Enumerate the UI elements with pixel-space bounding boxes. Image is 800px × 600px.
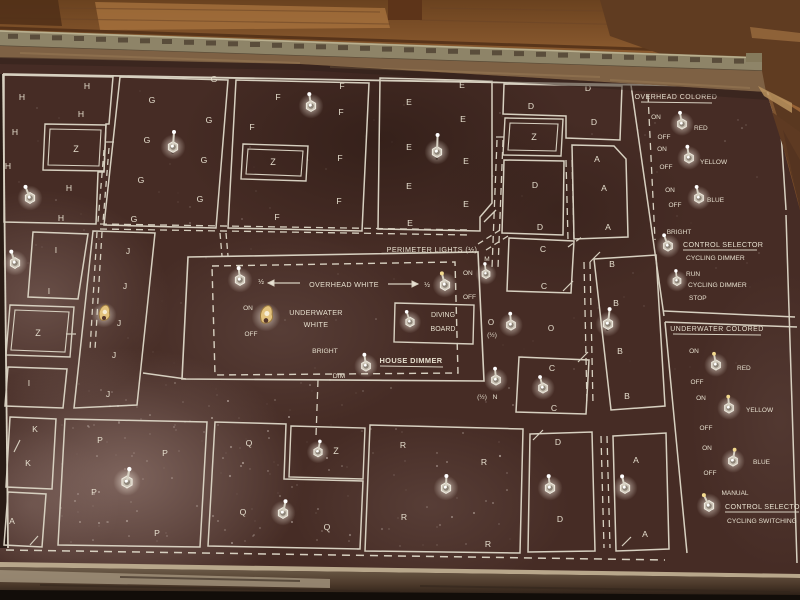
svg-text:B: B <box>624 391 630 401</box>
svg-text:OVERHEAD WHITE: OVERHEAD WHITE <box>309 280 379 289</box>
svg-text:BLUE: BLUE <box>753 459 771 466</box>
svg-text:I: I <box>28 378 30 388</box>
svg-text:CYCLING DIMMER: CYCLING DIMMER <box>688 282 747 289</box>
svg-text:P: P <box>91 487 97 497</box>
svg-text:Z: Z <box>270 157 276 167</box>
svg-text:Q: Q <box>240 507 247 517</box>
svg-text:E: E <box>406 181 412 191</box>
svg-text:J: J <box>112 350 116 360</box>
svg-text:A: A <box>601 183 607 193</box>
svg-text:DIM: DIM <box>333 373 346 380</box>
svg-text:DIVING: DIVING <box>431 312 455 319</box>
svg-text:E: E <box>407 218 413 228</box>
svg-text:E: E <box>406 97 412 107</box>
svg-text:G: G <box>211 74 218 84</box>
svg-text:J: J <box>126 246 130 256</box>
svg-text:G: G <box>201 155 208 165</box>
svg-text:B: B <box>609 259 615 269</box>
svg-text:ON: ON <box>689 348 699 355</box>
svg-text:E: E <box>459 80 465 90</box>
svg-text:R: R <box>485 539 491 549</box>
svg-text:OFF: OFF <box>691 379 704 386</box>
svg-text:YELLOW: YELLOW <box>746 407 774 414</box>
svg-text:D: D <box>537 222 543 232</box>
svg-text:M: M <box>484 256 489 263</box>
svg-text:UNDERWATER: UNDERWATER <box>289 308 343 317</box>
svg-text:OFF: OFF <box>658 134 671 141</box>
svg-text:H: H <box>5 161 11 171</box>
svg-text:P: P <box>154 528 160 538</box>
svg-text:(½): (½) <box>477 393 487 401</box>
svg-text:STOP: STOP <box>689 295 707 302</box>
svg-text:H: H <box>58 213 64 223</box>
svg-text:YELLOW: YELLOW <box>700 159 728 166</box>
svg-text:B: B <box>617 346 623 356</box>
svg-text:G: G <box>144 135 151 145</box>
svg-text:Z: Z <box>35 328 41 338</box>
svg-text:R: R <box>400 440 406 450</box>
svg-text:OFF: OFF <box>704 470 717 477</box>
svg-text:Z: Z <box>73 144 79 154</box>
svg-text:B: B <box>613 298 619 308</box>
svg-text:WHITE: WHITE <box>304 320 329 329</box>
svg-text:Z: Z <box>333 446 339 456</box>
svg-text:RUN: RUN <box>686 271 700 278</box>
svg-text:MANUAL: MANUAL <box>721 490 748 497</box>
svg-text:A: A <box>594 154 600 164</box>
svg-text:ON: ON <box>702 445 712 452</box>
svg-text:I: I <box>55 245 57 255</box>
svg-text:RED: RED <box>737 365 751 372</box>
svg-text:OFF: OFF <box>660 164 673 171</box>
svg-text:I: I <box>48 286 50 296</box>
svg-text:RED: RED <box>694 125 708 132</box>
svg-text:(½): (½) <box>487 331 497 339</box>
svg-text:N: N <box>493 394 498 401</box>
svg-text:Q: Q <box>324 522 331 532</box>
svg-text:G: G <box>197 194 204 204</box>
svg-text:J: J <box>123 281 127 291</box>
svg-text:F: F <box>336 196 341 206</box>
svg-text:E: E <box>460 114 466 124</box>
svg-text:Q: Q <box>246 438 253 448</box>
svg-text:OFF: OFF <box>669 202 682 209</box>
svg-text:J: J <box>117 318 121 328</box>
svg-text:D: D <box>532 180 538 190</box>
svg-text:F: F <box>274 212 279 222</box>
svg-text:D: D <box>528 101 534 111</box>
svg-text:E: E <box>463 156 469 166</box>
svg-text:C: C <box>540 244 546 254</box>
svg-text:A: A <box>605 222 611 232</box>
svg-text:F: F <box>339 81 344 91</box>
svg-text:A: A <box>642 529 648 539</box>
svg-text:H: H <box>84 81 90 91</box>
svg-text:G: G <box>149 95 156 105</box>
svg-text:A: A <box>9 516 15 526</box>
svg-text:F: F <box>275 92 280 102</box>
svg-text:P: P <box>97 435 103 445</box>
svg-text:OFF: OFF <box>245 331 258 338</box>
svg-text:C: C <box>541 281 547 291</box>
svg-text:ON: ON <box>651 114 661 121</box>
svg-text:CYCLING DIMMER: CYCLING DIMMER <box>686 255 745 262</box>
svg-text:CONTROL SELECTOR: CONTROL SELECTOR <box>725 502 800 511</box>
svg-text:½: ½ <box>258 278 264 286</box>
svg-text:CONTROL SELECTOR: CONTROL SELECTOR <box>683 240 763 249</box>
svg-text:P: P <box>162 448 168 458</box>
svg-text:UNDERWATER COLORED: UNDERWATER COLORED <box>670 326 763 333</box>
svg-text:H: H <box>19 92 25 102</box>
svg-text:ON: ON <box>696 395 706 402</box>
svg-text:ON: ON <box>463 270 473 277</box>
svg-text:R: R <box>401 512 407 522</box>
svg-text:BRIGHT: BRIGHT <box>312 348 338 355</box>
svg-text:J: J <box>106 389 110 399</box>
svg-text:ON: ON <box>657 146 667 153</box>
svg-text:BOARD: BOARD <box>431 326 456 333</box>
svg-text:C: C <box>551 403 557 413</box>
svg-text:CYCLING SWITCHING: CYCLING SWITCHING <box>727 518 797 525</box>
svg-text:H: H <box>78 109 84 119</box>
svg-text:OFF: OFF <box>463 294 476 301</box>
svg-text:A: A <box>633 455 639 465</box>
svg-text:OFF: OFF <box>700 425 713 432</box>
svg-text:H: H <box>66 183 72 193</box>
svg-text:F: F <box>337 153 342 163</box>
svg-text:H: H <box>12 127 18 137</box>
svg-text:½: ½ <box>424 281 430 289</box>
svg-text:G: G <box>131 214 138 224</box>
svg-text:K: K <box>32 424 38 434</box>
svg-text:O: O <box>488 318 494 327</box>
svg-text:D: D <box>557 514 563 524</box>
svg-text:K: K <box>25 458 31 468</box>
svg-text:G: G <box>138 175 145 185</box>
svg-text:E: E <box>463 199 469 209</box>
svg-text:F: F <box>249 122 254 132</box>
svg-text:PERIMETER LIGHTS (½): PERIMETER LIGHTS (½) <box>387 245 478 254</box>
svg-text:O: O <box>548 324 554 333</box>
svg-text:Z: Z <box>531 132 537 142</box>
svg-text:E: E <box>406 142 412 152</box>
svg-text:C: C <box>549 363 555 373</box>
svg-text:D: D <box>591 117 597 127</box>
svg-text:ON: ON <box>243 305 253 312</box>
svg-text:R: R <box>481 457 487 467</box>
svg-text:G: G <box>206 115 213 125</box>
svg-text:D: D <box>555 437 561 447</box>
svg-text:F: F <box>338 107 343 117</box>
svg-text:ON: ON <box>665 187 675 194</box>
